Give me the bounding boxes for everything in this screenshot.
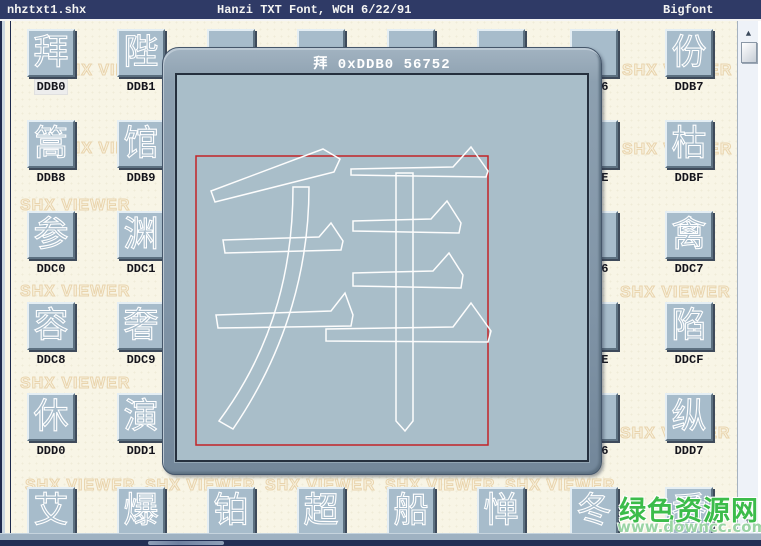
- glyph-code-label: DDB8: [19, 171, 83, 185]
- glyph-cell-button[interactable]: 船: [387, 487, 435, 535]
- glyph-char: 演: [123, 400, 158, 435]
- glyph-char: 爆: [123, 494, 158, 529]
- glyph-cell-button[interactable]: 拜: [27, 29, 75, 77]
- font-description: Hanzi TXT Font, WCH 6/22/91: [217, 3, 411, 17]
- glyph-code-label: DDC7: [657, 262, 721, 276]
- glyph-char: 冬: [576, 494, 611, 529]
- glyph-cell-button[interactable]: 铂: [207, 487, 255, 535]
- font-type-label: Bigfont: [663, 3, 713, 17]
- glyph-char: 篙: [33, 127, 68, 162]
- shx-viewer-watermark: SHX VIEWER: [20, 375, 130, 393]
- glyph-code-label: DDB0: [19, 80, 83, 94]
- glyph-cell-button[interactable]: 冬: [570, 487, 618, 535]
- glyph-char: 容: [33, 309, 68, 344]
- glyph-code-label: DDCF: [657, 353, 721, 367]
- glyph-code-label: DDC8: [19, 353, 83, 367]
- glyph-char: 船: [393, 494, 428, 529]
- glyph-code-label: DDD0: [19, 444, 83, 458]
- bottom-status-strip: [0, 540, 761, 546]
- glyph-cell-button[interactable]: 纵: [665, 393, 713, 441]
- glyph-cell-button[interactable]: 禽: [665, 211, 713, 259]
- glyph-cell-button[interactable]: 陛: [117, 29, 165, 77]
- glyph-cell-button[interactable]: 陷: [665, 302, 713, 350]
- glyph-char: 陷: [671, 309, 706, 344]
- glyph-cell-button[interactable]: 份: [665, 29, 713, 77]
- glyph-char: 渊: [123, 218, 158, 253]
- glyph-char: 铂: [213, 494, 248, 529]
- glyph-cell-button[interactable]: 枯: [665, 120, 713, 168]
- glyph-char: 艾: [33, 494, 68, 529]
- glyph-char: 拜: [33, 36, 68, 71]
- glyph-cell-button[interactable]: 馆: [117, 120, 165, 168]
- glyph-char: 休: [33, 400, 68, 435]
- glyph-cell-button[interactable]: 篙: [27, 120, 75, 168]
- glyph-code-label: DDBF: [657, 171, 721, 185]
- glyph-char: 参: [33, 218, 68, 253]
- glyph-strokes: [211, 147, 491, 431]
- glyph-cell-button[interactable]: 休: [27, 393, 75, 441]
- glyph-code-label: DDB7: [657, 80, 721, 94]
- glyph-preview-dialog[interactable]: 拜 0xDDB0 56752: [162, 47, 602, 475]
- glyph-char: 枯: [671, 127, 706, 162]
- glyph-char: 纵: [671, 400, 706, 435]
- shx-viewer-watermark: SHX VIEWER: [20, 283, 130, 301]
- shx-viewer-watermark: SHX VIEWER: [620, 284, 730, 302]
- glyph-cell-button[interactable]: 渊: [117, 211, 165, 259]
- scroll-up-icon[interactable]: ▲: [738, 27, 759, 41]
- dialog-title: 拜 0xDDB0 56752: [163, 53, 601, 73]
- title-bar: nhztxt1.shx Hanzi TXT Font, WCH 6/22/91 …: [0, 0, 761, 21]
- glyph-char: 陛: [123, 36, 158, 71]
- bounding-box: [196, 156, 488, 445]
- glyph-char: 超: [303, 494, 338, 529]
- glyph-outline-drawing: [177, 75, 587, 460]
- glyph-cell-button[interactable]: 艾: [27, 487, 75, 535]
- window-left-border: [0, 19, 2, 546]
- site-watermark-url: www.downcc.com: [617, 518, 761, 536]
- glyph-char: 份: [671, 36, 706, 71]
- scroll-thumb[interactable]: [741, 42, 757, 63]
- glyph-cell-button[interactable]: 超: [297, 487, 345, 535]
- bottom-strip-fragment: [148, 541, 224, 545]
- scrollbar[interactable]: ▲ ▼: [737, 19, 759, 533]
- glyph-cell-button[interactable]: 容: [27, 302, 75, 350]
- glyph-cell-button[interactable]: 参: [27, 211, 75, 259]
- glyph-cell-button[interactable]: 演: [117, 393, 165, 441]
- glyph-char: 惮: [483, 494, 518, 529]
- glyph-char: 奢: [123, 309, 158, 344]
- file-name: nhztxt1.shx: [7, 3, 86, 17]
- glyph-cell-button[interactable]: 惮: [477, 487, 525, 535]
- glyph-char: 禽: [671, 218, 706, 253]
- glyph-preview-canvas: [175, 73, 589, 462]
- glyph-code-label: DDC0: [19, 262, 83, 276]
- glyph-code-label: DDD7: [657, 444, 721, 458]
- glyph-char: 馆: [123, 127, 158, 162]
- glyph-cell-button[interactable]: 奢: [117, 302, 165, 350]
- glyph-cell-button[interactable]: 爆: [117, 487, 165, 535]
